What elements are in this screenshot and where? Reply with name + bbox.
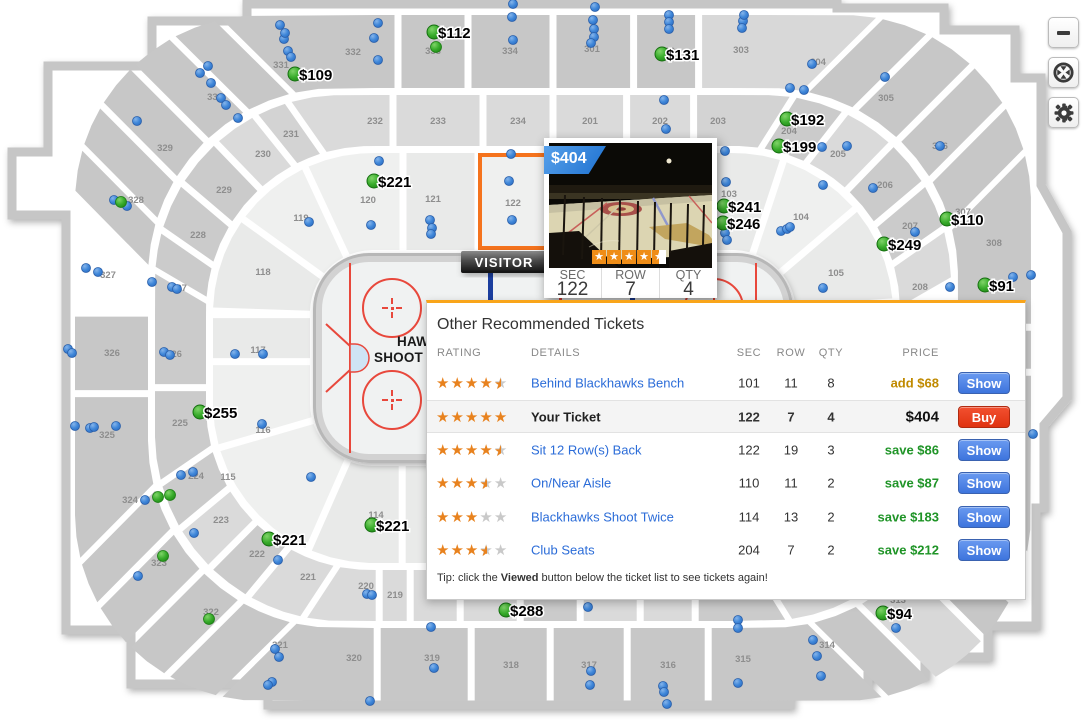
svg-text:219: 219 [387, 590, 403, 601]
svg-text:118: 118 [255, 267, 270, 278]
svg-text:$192: $192 [791, 112, 824, 129]
svg-text:318: 318 [503, 660, 519, 671]
svg-text:$109: $109 [299, 67, 332, 84]
svg-text:305: 305 [878, 93, 895, 104]
svg-text:$94: $94 [887, 606, 913, 623]
svg-text:201: 201 [582, 116, 599, 127]
svg-text:234: 234 [510, 116, 527, 127]
svg-text:334: 334 [502, 46, 519, 57]
svg-text:205: 205 [830, 149, 847, 160]
svg-text:332: 332 [345, 47, 361, 58]
svg-text:308: 308 [986, 238, 1002, 249]
svg-text:$131: $131 [666, 47, 699, 64]
svg-text:320: 320 [346, 653, 362, 664]
svg-text:206: 206 [877, 180, 893, 191]
svg-text:203: 203 [710, 116, 726, 127]
svg-text:221: 221 [300, 572, 317, 583]
svg-text:314: 314 [819, 640, 836, 651]
svg-text:121: 121 [425, 194, 442, 205]
svg-text:232: 232 [367, 116, 383, 127]
svg-text:223: 223 [213, 515, 229, 526]
svg-text:230: 230 [255, 149, 271, 160]
svg-text:120: 120 [360, 195, 376, 206]
svg-text:222: 222 [249, 549, 265, 560]
svg-text:329: 329 [157, 143, 173, 154]
svg-text:228: 228 [190, 230, 206, 241]
svg-text:115: 115 [220, 472, 236, 483]
svg-text:229: 229 [216, 185, 232, 196]
svg-text:$249: $249 [888, 237, 921, 254]
svg-text:331: 331 [273, 60, 290, 71]
svg-text:$255: $255 [204, 405, 237, 422]
svg-text:105: 105 [828, 268, 845, 279]
svg-text:303: 303 [733, 45, 749, 56]
svg-text:$221: $221 [376, 518, 409, 535]
svg-text:316: 316 [660, 660, 676, 671]
svg-text:$288: $288 [510, 603, 543, 620]
svg-text:324: 324 [122, 495, 139, 506]
svg-text:319: 319 [424, 653, 440, 664]
svg-text:231: 231 [283, 129, 300, 140]
svg-text:$221: $221 [378, 174, 411, 191]
svg-text:$110: $110 [951, 212, 984, 229]
svg-text:325: 325 [99, 430, 116, 441]
svg-text:$199: $199 [783, 139, 816, 156]
svg-text:315: 315 [735, 654, 752, 665]
svg-text:208: 208 [912, 282, 928, 293]
svg-text:104: 104 [793, 212, 810, 223]
svg-text:VISITOR: VISITOR [475, 255, 534, 270]
svg-text:225: 225 [172, 418, 189, 429]
svg-text:$221: $221 [273, 532, 306, 549]
svg-text:$112: $112 [438, 25, 471, 42]
svg-text:233: 233 [430, 116, 446, 127]
svg-text:326: 326 [104, 348, 120, 359]
svg-text:$241: $241 [728, 199, 761, 216]
svg-text:$91: $91 [989, 278, 1014, 295]
svg-text:$246: $246 [727, 216, 760, 233]
svg-text:122: 122 [505, 198, 521, 209]
